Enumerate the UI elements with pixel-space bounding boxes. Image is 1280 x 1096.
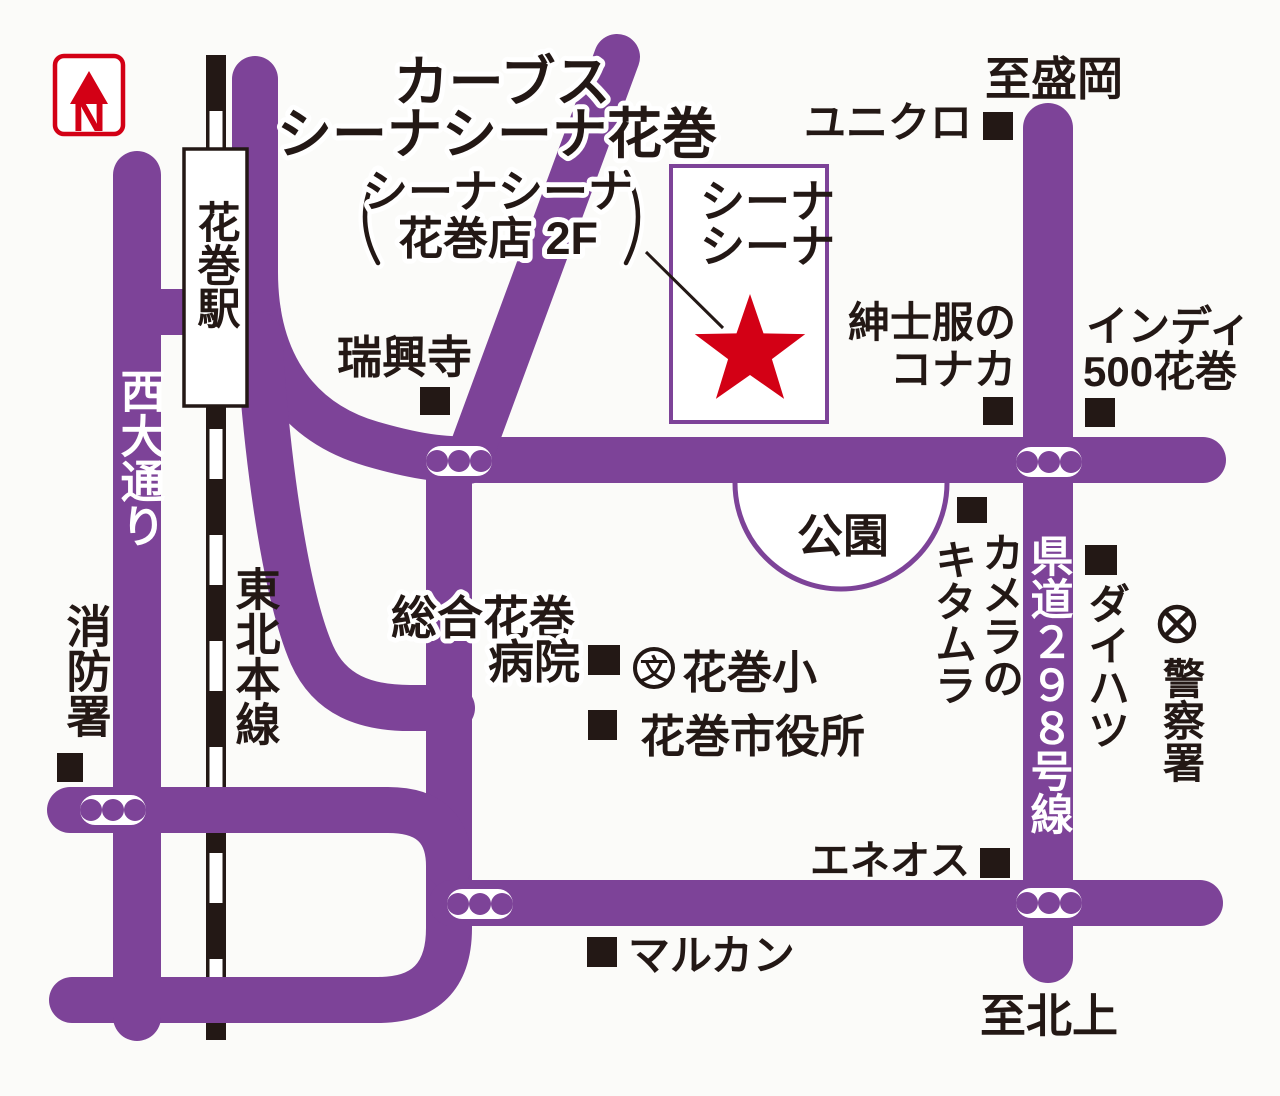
map-title-paren-line1: シーナシーナ [363,166,633,217]
destination-label-line1: シーナ [700,176,835,227]
label-to-morioka: 至盛岡 [985,53,1123,105]
traffic-light-lens [1016,451,1038,473]
marker-kitamura [957,497,987,523]
label-konaka-line1: 紳士服の [848,299,1016,346]
traffic-light-lens [448,450,470,472]
label-zuikoji: 瑞興寺 [337,332,472,383]
traffic-light-lens [491,893,513,915]
traffic-light-west-nishiodori [80,795,146,825]
label-indy500-line1: インディ [1086,303,1251,350]
label-road-kendo-298: 県道２９８号線 [1024,534,1074,835]
traffic-light-main-kendo [1016,447,1082,477]
school-symbol-glyph: 文 [640,653,668,685]
label-to-kitakami: 至北上 [980,990,1118,1042]
label-school: 花巻小 [682,647,817,698]
marker-hospital [588,645,620,675]
traffic-light-lens [447,893,469,915]
north-compass-label: N [72,89,105,141]
traffic-light-lens [80,799,102,821]
label-police: 警察署 [1158,657,1205,783]
label-kitamura-line2: キタムラ [930,538,977,706]
marker-konaka [983,397,1013,425]
label-konaka-line2: コナカ [890,346,1016,393]
north-compass: N [55,56,123,141]
traffic-light-south-west [447,889,513,919]
label-kitamura-line1: カメラの [977,531,1024,699]
destination-label-line2: シーナ [700,221,835,272]
school-map-symbol-icon: 文 [635,649,673,687]
traffic-light-lens [1060,451,1082,473]
traffic-light-lens [1016,892,1038,914]
label-eneos: エネオス [810,839,970,883]
traffic-light-lens [124,799,146,821]
traffic-light-lens [1038,892,1060,914]
label-tohoku-line: 東北本線 [229,566,281,746]
police-map-symbol-icon [1160,607,1194,641]
label-hospital-line2: 病院 [488,636,580,688]
label-park: 公園 [797,510,889,562]
traffic-light-lens [102,799,124,821]
map-title-line2: シーナシーナ花巻 [277,103,717,165]
label-daihatsu: ダイハツ [1083,582,1130,750]
traffic-light-main-intersection [426,446,492,476]
marker-city-hall [588,710,617,740]
traffic-light-lens [470,450,492,472]
label-road-nishi-odori: 西大通り [114,368,166,548]
marker-zuikoji [420,387,450,415]
traffic-light-lens [469,893,491,915]
traffic-light-south-kendo [1016,888,1082,918]
label-uniqlo: ユニクロ [804,99,972,146]
marker-daihatsu [1085,545,1117,575]
label-marukan: マルカン [628,932,795,979]
label-fire-station: 消防署 [60,603,112,738]
map-canvas: 花巻駅 シーナ シーナ カーブス シーナシーナ花巻 シ [0,0,1280,1096]
marker-eneos [980,848,1010,878]
marker-fire-station [57,753,83,782]
station-label: 花巻駅 [191,200,241,329]
traffic-light-lens [1060,892,1082,914]
traffic-light-lens [426,450,448,472]
label-indy500-line2: 500花巻 [1083,348,1237,395]
map-title-paren-line2: 花巻店 2F [398,213,598,264]
access-map: 花巻駅 シーナ シーナ カーブス シーナシーナ花巻 シ [0,0,1280,1096]
marker-marukan [587,937,617,967]
label-city-hall: 花巻市役所 [640,711,865,762]
marker-indy500 [1085,398,1115,427]
traffic-light-lens [1038,451,1060,473]
marker-uniqlo [983,112,1013,140]
